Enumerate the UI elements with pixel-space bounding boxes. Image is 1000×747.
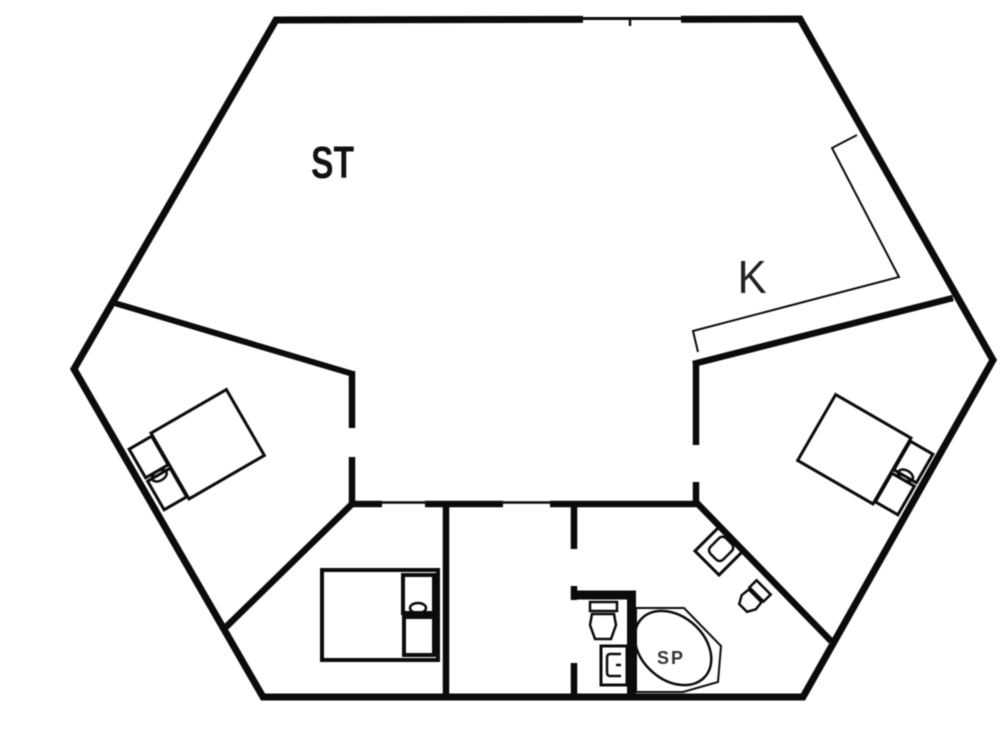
svg-text:ST: ST <box>311 138 354 188</box>
svg-text:SP: SP <box>657 648 685 668</box>
svg-text:K: K <box>738 251 767 303</box>
